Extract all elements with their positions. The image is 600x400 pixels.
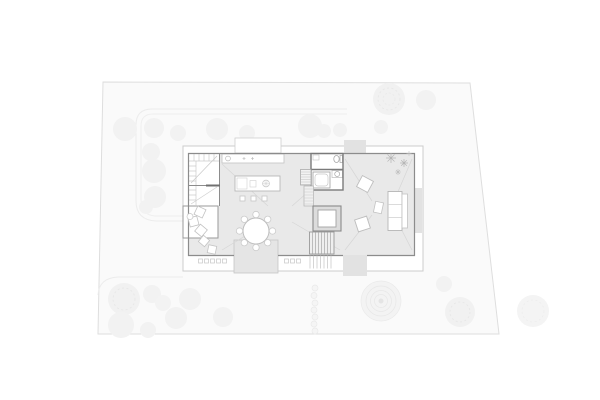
tree xyxy=(170,125,186,141)
planter xyxy=(217,259,221,263)
site-plan xyxy=(0,0,600,400)
bar-stool xyxy=(262,196,267,201)
dining-chair xyxy=(253,244,259,250)
dining-chair xyxy=(265,240,271,246)
planter xyxy=(211,259,215,263)
tree xyxy=(140,322,156,338)
floor-plan-canvas xyxy=(0,0,600,400)
tree xyxy=(445,297,475,327)
tree xyxy=(213,307,233,327)
bath-sink xyxy=(335,172,340,177)
bathtub xyxy=(313,172,330,188)
dining-chair xyxy=(241,216,247,222)
tree xyxy=(165,307,187,329)
dining-chair xyxy=(269,228,275,234)
breezeway-south xyxy=(343,255,367,276)
planter xyxy=(285,259,289,263)
dining-chair xyxy=(241,240,247,246)
plant xyxy=(400,159,408,167)
fireplace-hearth xyxy=(318,210,336,227)
stepping-stone xyxy=(311,307,317,313)
side-table xyxy=(187,214,193,220)
side-porch xyxy=(414,188,422,233)
stair-tread xyxy=(313,233,331,254)
planter xyxy=(205,259,209,263)
coffee-table xyxy=(373,201,383,213)
tree xyxy=(142,143,160,161)
stepping-stone xyxy=(311,293,317,299)
tree xyxy=(317,124,331,138)
fruit-bowl-spokes xyxy=(263,180,270,187)
planter xyxy=(291,259,295,263)
dining-table xyxy=(243,218,269,244)
bar-stool xyxy=(251,196,256,201)
dining-chair xyxy=(236,228,242,234)
sofa-back xyxy=(402,194,408,228)
exterior-step xyxy=(310,256,331,269)
tree xyxy=(333,123,347,137)
dining-chair xyxy=(253,211,259,217)
planter xyxy=(199,259,203,263)
kitchen-sink xyxy=(226,156,231,161)
stepping-stone xyxy=(312,285,318,291)
tree xyxy=(436,276,452,292)
wc-shelf xyxy=(313,155,319,160)
bar-stool xyxy=(240,196,245,201)
plant xyxy=(386,153,396,163)
tree xyxy=(108,312,134,338)
toilet-tank xyxy=(340,156,343,163)
tree-trunk xyxy=(379,299,384,304)
planter xyxy=(223,259,227,263)
stepping-stone xyxy=(311,321,317,327)
entry-porch xyxy=(235,138,281,153)
dining-chair xyxy=(265,216,271,222)
tree xyxy=(416,90,436,110)
tree xyxy=(155,295,171,311)
tree xyxy=(374,120,388,134)
planter xyxy=(297,259,301,263)
sofa xyxy=(388,192,402,231)
tree xyxy=(113,117,137,141)
stepping-stone xyxy=(312,300,318,306)
toilet xyxy=(334,156,339,163)
terrace-lounger xyxy=(207,245,216,254)
tree xyxy=(179,288,201,310)
tree xyxy=(142,159,166,183)
tree xyxy=(139,200,153,214)
stepping-stone xyxy=(312,314,318,320)
stepping-stone xyxy=(312,328,318,334)
tree xyxy=(206,118,228,140)
tree xyxy=(144,118,164,138)
